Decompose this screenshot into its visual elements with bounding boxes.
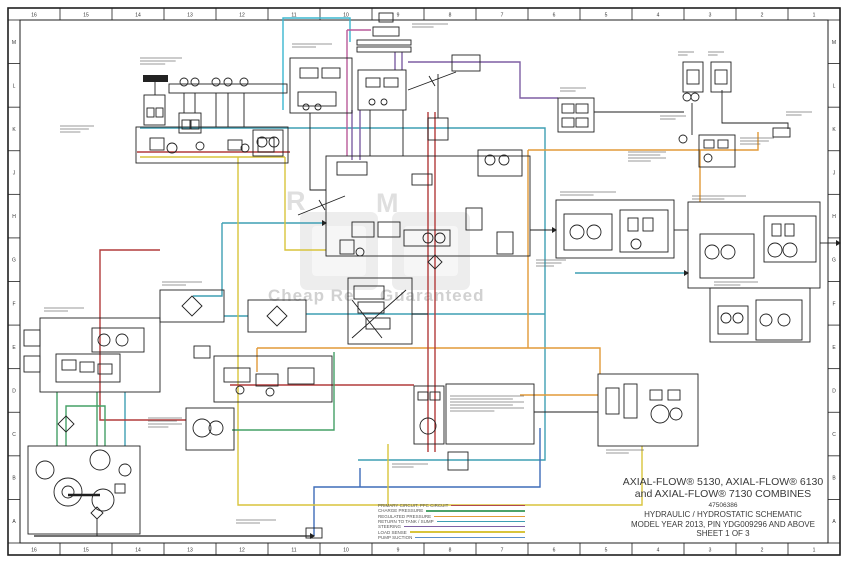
- pump-motor-circle: [704, 154, 712, 162]
- legend-color-line: [451, 505, 525, 506]
- legend-color-line: [434, 516, 525, 517]
- component-box: [28, 446, 140, 534]
- component-box: [497, 232, 513, 254]
- border-row-label: M: [12, 40, 16, 46]
- connector-line: [319, 200, 325, 210]
- component-box: [562, 104, 574, 113]
- pump-motor-circle: [691, 93, 699, 101]
- border-column-label: 5: [605, 548, 608, 554]
- component-box: [384, 78, 398, 87]
- border-column-label: 12: [239, 13, 245, 19]
- title-block: AXIAL-FLOW® 5130, AXIAL-FLOW® 6130 and A…: [600, 476, 846, 539]
- border-row-label: G: [12, 258, 16, 264]
- title-line-6: SHEET 1 OF 3: [600, 529, 846, 539]
- border-row-label: J: [833, 171, 836, 177]
- pump-motor-circle: [92, 489, 114, 511]
- component-box: [147, 108, 154, 117]
- component-box: [764, 216, 816, 262]
- component-box: [412, 174, 432, 185]
- pump-motor-circle: [499, 155, 509, 165]
- pump-motor-circle: [315, 104, 321, 110]
- legend-color-line: [437, 521, 525, 522]
- component-box: [628, 218, 638, 231]
- component-box: [366, 78, 380, 87]
- component-box: [687, 70, 699, 84]
- component-box: [624, 384, 637, 418]
- component-box: [56, 354, 120, 382]
- border-row-label: E: [12, 345, 16, 351]
- pump-motor-circle: [303, 104, 309, 110]
- legend-color-line: [404, 526, 525, 527]
- pump-motor-circle: [193, 419, 211, 437]
- border-column-label: 13: [187, 13, 193, 19]
- component-box: [772, 224, 781, 236]
- border-column-label: 4: [657, 548, 660, 554]
- border-row-label: M: [832, 40, 836, 46]
- component-box: [606, 388, 619, 414]
- border-column-label: 9: [397, 13, 400, 19]
- component-solid: [143, 75, 168, 82]
- legend-label: REGULATED PRESSURE: [378, 514, 431, 519]
- border-column-label: 3: [709, 548, 712, 554]
- component-box: [452, 55, 480, 71]
- border-column-label: 7: [501, 548, 504, 554]
- component-box: [556, 200, 674, 258]
- title-line-2: and AXIAL-FLOW® 7130 COMBINES: [600, 488, 846, 500]
- component-box: [404, 230, 450, 246]
- pump-motor-circle: [631, 239, 641, 249]
- component-box: [446, 384, 534, 444]
- pump-motor-circle: [705, 245, 719, 259]
- pump-motor-circle: [381, 99, 387, 105]
- component-box: [643, 218, 653, 231]
- component-box: [357, 47, 411, 52]
- legend-color-line: [410, 531, 525, 532]
- border-row-label: J: [13, 171, 16, 177]
- component-box: [379, 13, 393, 22]
- border-row-label: G: [832, 258, 836, 264]
- component-box: [650, 390, 662, 400]
- border-row-label: E: [832, 345, 836, 351]
- hydraulic-line-teal: [193, 223, 222, 296]
- component-box: [224, 368, 250, 382]
- component-box: [683, 62, 703, 92]
- border-row-label: H: [12, 214, 16, 220]
- pump-motor-circle: [670, 408, 682, 420]
- pump-motor-circle: [191, 78, 199, 86]
- pump-motor-circle: [683, 93, 691, 101]
- border-column-label: 5: [605, 13, 608, 19]
- legend-label: PUMP SUCTION: [378, 535, 412, 540]
- title-line-1: AXIAL-FLOW® 5130, AXIAL-FLOW® 6130: [600, 476, 846, 488]
- component-box: [562, 118, 574, 127]
- title-line-4: HYDRAULIC / HYDROSTATIC SCHEMATIC: [600, 510, 846, 520]
- border-column-label: 3: [709, 13, 712, 19]
- pump-motor-circle: [196, 142, 204, 150]
- border-row-label: K: [832, 127, 836, 133]
- hydraulic-line-yellow: [238, 157, 642, 505]
- pump-motor-circle: [369, 99, 375, 105]
- component-box: [756, 300, 802, 340]
- component-box: [576, 118, 588, 127]
- component-box: [352, 222, 374, 237]
- pump-motor-circle: [62, 486, 74, 498]
- component-box: [24, 330, 40, 346]
- border-row-label: F: [832, 301, 835, 307]
- connector-line: [310, 113, 326, 190]
- part-number: 47506386: [600, 501, 846, 510]
- line-legend: PRIMARY CIRCUIT, PFC CIRCUITCHARGE PRESS…: [378, 503, 525, 540]
- border-row-label: L: [13, 83, 16, 89]
- pump-motor-circle: [212, 78, 220, 86]
- component-box: [288, 368, 314, 384]
- pump-motor-circle: [778, 314, 790, 326]
- hydraulic-line-red: [100, 250, 186, 420]
- hydraulic-line-teal: [140, 128, 545, 460]
- hydraulic-line-green: [232, 352, 334, 430]
- pump-motor-circle: [783, 243, 797, 257]
- component-box: [24, 356, 40, 372]
- pump-motor-circle: [119, 464, 131, 476]
- border-column-label: 10: [343, 548, 349, 554]
- pump-motor-circle: [679, 135, 687, 143]
- border-column-label: 8: [449, 13, 452, 19]
- pump-motor-circle: [721, 245, 735, 259]
- connector-line: [722, 90, 788, 129]
- border-column-label: 15: [83, 13, 89, 19]
- hydraulic-line-purple: [408, 62, 558, 98]
- component-box: [160, 290, 224, 322]
- legend-color-line: [415, 537, 525, 538]
- pump-motor-circle: [236, 386, 244, 394]
- border-column-label: 2: [761, 548, 764, 554]
- pump-motor-circle: [356, 248, 364, 256]
- border-column-label: 6: [553, 548, 556, 554]
- border-row-label: C: [12, 432, 16, 438]
- component-box: [785, 224, 794, 236]
- border-row-label: A: [12, 519, 16, 525]
- border-row-label: C: [832, 432, 836, 438]
- pump-motor-circle: [257, 137, 267, 147]
- component-box: [718, 140, 728, 148]
- border-column-label: 16: [31, 548, 37, 554]
- border-column-label: 1: [813, 13, 816, 19]
- border-column-label: 14: [135, 13, 141, 19]
- border-column-label: 16: [31, 13, 37, 19]
- pump-motor-circle: [224, 78, 232, 86]
- component-box: [228, 140, 242, 150]
- component-box: [378, 222, 400, 237]
- legend-label: PRIMARY CIRCUIT, PFC CIRCUIT: [378, 503, 448, 508]
- component-box: [668, 390, 680, 400]
- border-row-label: F: [12, 301, 15, 307]
- component-box: [700, 234, 754, 278]
- pump-motor-circle: [240, 78, 248, 86]
- pump-motor-circle: [760, 314, 772, 326]
- legend-label: RETURN TO TANK / SUMP: [378, 519, 434, 524]
- component-box: [373, 27, 399, 36]
- border-column-label: 12: [239, 548, 245, 554]
- component-box: [115, 484, 125, 493]
- title-line-5: MODEL YEAR 2013, PIN YDG009296 AND ABOVE: [600, 520, 846, 530]
- legend-color-line: [426, 510, 525, 511]
- border-column-label: 2: [761, 13, 764, 19]
- component-box: [248, 300, 306, 332]
- component-box: [357, 40, 411, 45]
- sheet-outer-border: [8, 8, 840, 555]
- border-row-label: B: [12, 476, 16, 482]
- component-box: [414, 386, 444, 444]
- connector-line: [352, 300, 382, 338]
- border-column-label: 1: [813, 548, 816, 554]
- component-box: [80, 362, 94, 372]
- pump-motor-circle: [485, 155, 495, 165]
- filter-cooler-diamond: [182, 296, 202, 316]
- legend-label: LOAD SENSE: [378, 530, 407, 535]
- component-box: [300, 68, 318, 78]
- component-box: [150, 138, 164, 150]
- pump-motor-circle: [36, 461, 54, 479]
- pump-motor-circle: [768, 243, 782, 257]
- border-row-label: H: [832, 214, 836, 220]
- border-column-label: 7: [501, 13, 504, 19]
- pump-motor-circle: [116, 334, 128, 346]
- component-box: [598, 374, 698, 446]
- schematic-sheet: R M Cheap Re Guaranteed 1616151514141313…: [0, 0, 848, 563]
- component-box: [704, 140, 714, 148]
- component-box: [466, 208, 482, 230]
- legend-label: STEERING: [378, 524, 401, 529]
- pump-motor-circle: [570, 225, 584, 239]
- pump-motor-circle: [54, 478, 82, 506]
- connector-line: [298, 196, 345, 215]
- pump-motor-circle: [721, 313, 731, 323]
- border-column-label: 4: [657, 13, 660, 19]
- legend-label: CHARGE PRESSURE: [378, 508, 423, 513]
- connector-line: [429, 76, 435, 86]
- border-column-label: 15: [83, 548, 89, 554]
- component-box: [358, 302, 384, 313]
- sheet-inner-border: [20, 20, 828, 543]
- hydraulic-line-cyan: [283, 18, 350, 110]
- component-box: [290, 58, 352, 113]
- component-box: [194, 346, 210, 358]
- component-box: [428, 118, 448, 140]
- component-box: [715, 70, 727, 84]
- component-box: [354, 286, 384, 299]
- border-row-label: D: [12, 388, 16, 394]
- pump-motor-circle: [180, 78, 188, 86]
- border-column-label: 9: [397, 548, 400, 554]
- border-column-label: 13: [187, 548, 193, 554]
- component-box: [564, 214, 612, 250]
- border-column-label: 8: [449, 548, 452, 554]
- component-box: [322, 68, 340, 78]
- component-box: [156, 108, 163, 117]
- border-row-label: K: [12, 127, 16, 133]
- filter-cooler-diamond: [267, 306, 287, 326]
- pump-motor-circle: [587, 225, 601, 239]
- component-box: [337, 162, 367, 175]
- border-row-label: L: [833, 83, 836, 89]
- legend-item: PUMP SUCTION: [378, 535, 525, 540]
- border-column-label: 6: [553, 13, 556, 19]
- pump-motor-circle: [435, 233, 445, 243]
- pump-motor-circle: [651, 405, 669, 423]
- component-box: [256, 374, 278, 386]
- component-box: [576, 104, 588, 113]
- component-box: [62, 360, 76, 370]
- pump-motor-circle: [90, 450, 110, 470]
- component-box: [773, 128, 790, 137]
- component-box: [366, 318, 390, 329]
- component-box: [418, 392, 428, 400]
- component-box: [340, 240, 354, 254]
- component-box: [448, 452, 468, 470]
- border-row-label: D: [832, 388, 836, 394]
- hydraulic-line-yellow: [285, 157, 326, 250]
- pump-motor-circle: [733, 313, 743, 323]
- component-box: [711, 62, 731, 92]
- border-column-label: 11: [291, 548, 296, 554]
- pump-motor-circle: [266, 388, 274, 396]
- border-column-label: 14: [135, 548, 141, 554]
